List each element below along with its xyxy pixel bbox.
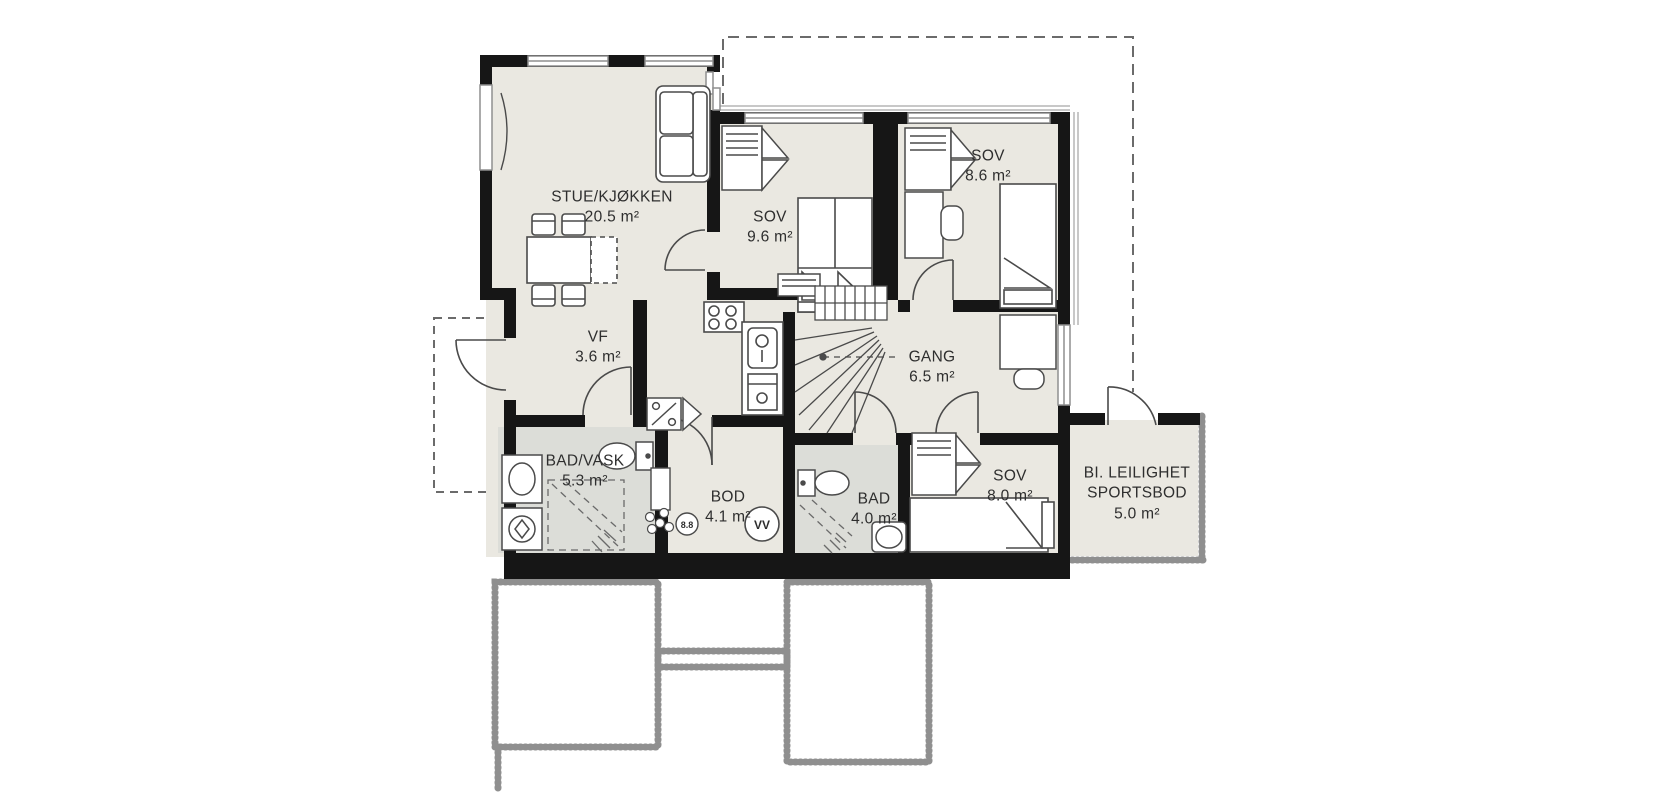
room-area: 3.6 m² [575, 348, 621, 368]
toilet-icon [798, 470, 849, 496]
washing-machine-icon [502, 508, 542, 550]
room-label-bad: BAD 4.0 m² [851, 490, 897, 531]
floor-plan-page: 8.8 VV [0, 0, 1670, 800]
room-area: 4.0 m² [851, 510, 897, 530]
sofa [656, 86, 710, 182]
door-sportsbod [1108, 387, 1156, 425]
cooktop [704, 302, 744, 332]
room-label-bod: BOD 4.1 m² [705, 488, 751, 529]
room-name-2: SPORTSBOD [1084, 484, 1190, 504]
room-label-bi-leilighet-sportsbod: BI. LEILIGHET SPORTSBOD 5.0 m² [1084, 463, 1190, 524]
room-label-stue-kjokken: STUE/KJØKKEN 20.5 m² [551, 188, 673, 229]
room-area: 6.5 m² [909, 368, 956, 388]
water-heater-label: VV [754, 518, 770, 532]
room-area: 20.5 m² [551, 208, 673, 228]
room-label-gang: GANG 6.5 m² [909, 348, 956, 389]
wall-niche [651, 468, 670, 510]
room-area: 8.6 m² [965, 167, 1011, 187]
room-name: BAD [851, 490, 897, 510]
room-area: 8.0 m² [987, 487, 1033, 507]
room-name: SOV [747, 208, 793, 228]
room-label-bad-vask: BAD/VASK 5.3 m² [546, 452, 625, 493]
room-area: 5.3 m² [546, 472, 625, 492]
room-name: BAD/VASK [546, 452, 625, 472]
wardrobe [778, 274, 820, 296]
laundry-sink [502, 455, 542, 503]
floor-drain-circle: 8.8 [676, 513, 698, 535]
room-label-sov-9-6: SOV 9.6 m² [747, 208, 793, 249]
room-area: 4.1 m² [705, 508, 751, 528]
floor-plan-drawing: 8.8 VV [0, 0, 1670, 800]
room-name: SOV [965, 147, 1011, 167]
room-name: BI. LEILIGHET [1084, 463, 1190, 483]
drain-label: 8.8 [681, 520, 694, 530]
room-area: 5.0 m² [1084, 504, 1190, 524]
room-label-vf: VF 3.6 m² [575, 328, 621, 369]
room-name: GANG [909, 348, 956, 368]
room-label-sov-8-0: SOV 8.0 m² [987, 467, 1033, 508]
kitchen-counter-sink [742, 322, 783, 415]
room-area: 9.6 m² [747, 228, 793, 248]
room-name: SOV [987, 467, 1033, 487]
room-name: VF [575, 328, 621, 348]
room-name: STUE/KJØKKEN [551, 188, 673, 208]
room-label-sov-8-6: SOV 8.6 m² [965, 147, 1011, 188]
single-bed [1000, 184, 1056, 308]
room-name: BOD [705, 488, 751, 508]
